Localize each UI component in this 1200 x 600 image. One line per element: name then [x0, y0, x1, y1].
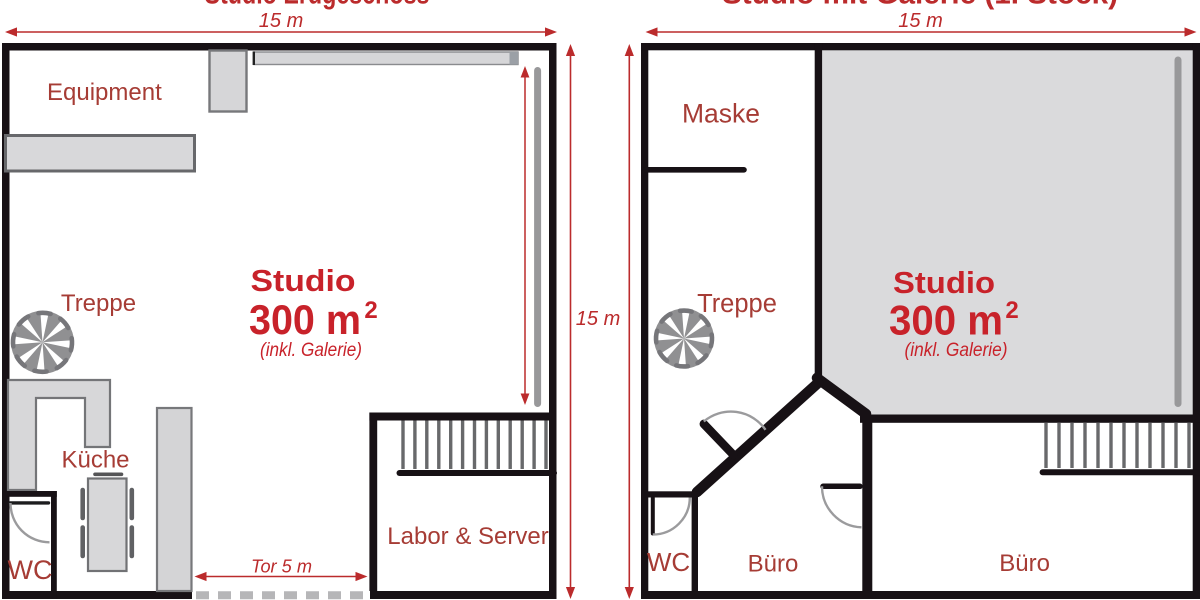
svg-text:Studio: Studio: [893, 265, 995, 300]
svg-text:15 m: 15 m: [259, 10, 303, 32]
svg-text:(inkl. Galerie): (inkl. Galerie): [260, 340, 362, 361]
svg-text:Tor 5 m: Tor 5 m: [251, 556, 312, 577]
svg-text:Treppe: Treppe: [61, 290, 136, 317]
svg-text:Equipment: Equipment: [47, 79, 162, 106]
svg-text:2: 2: [1005, 297, 1018, 324]
svg-text:Maske: Maske: [682, 99, 760, 129]
svg-text:15 m: 15 m: [576, 308, 620, 330]
svg-text:15 m: 15 m: [898, 10, 942, 32]
svg-text:(inkl. Galerie): (inkl. Galerie): [905, 340, 1008, 361]
svg-text:Studio mit Galerie (1. Stock): Studio mit Galerie (1. Stock): [722, 0, 1118, 11]
svg-text:Küche: Küche: [61, 447, 129, 474]
svg-text:300 m: 300 m: [249, 296, 361, 343]
svg-text:Büro: Büro: [999, 550, 1050, 577]
svg-text:Studio Erdgeschoss: Studio Erdgeschoss: [205, 0, 430, 11]
svg-text:Treppe: Treppe: [697, 290, 777, 318]
svg-text:WC: WC: [647, 547, 690, 577]
svg-text:Büro: Büro: [748, 551, 799, 578]
svg-text:300 m: 300 m: [889, 297, 1003, 344]
svg-text:Labor & Server: Labor & Server: [387, 523, 548, 550]
svg-text:Studio: Studio: [251, 263, 356, 298]
svg-text:WC: WC: [8, 555, 53, 585]
svg-text:2: 2: [364, 297, 377, 324]
